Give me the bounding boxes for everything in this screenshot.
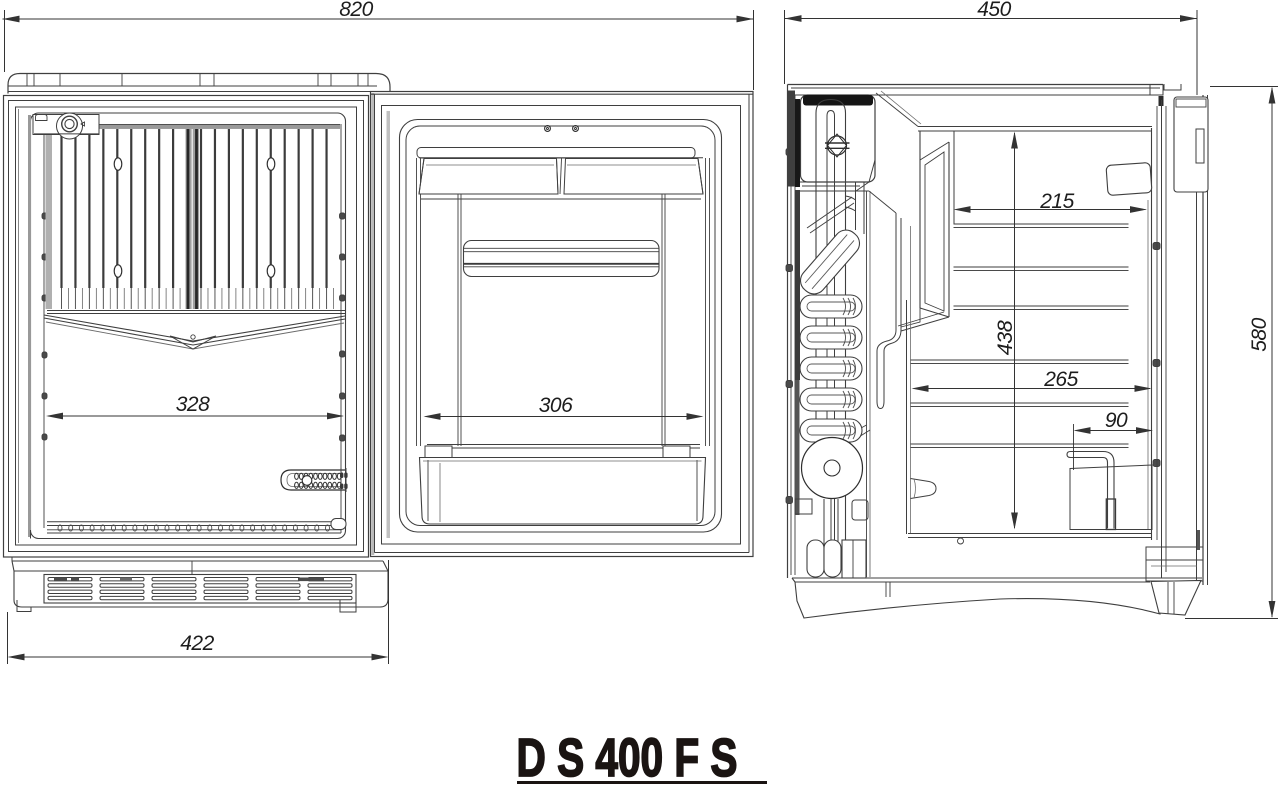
svg-text:328: 328 — [176, 393, 210, 416]
svg-text:438: 438 — [993, 320, 1017, 355]
svg-text:820: 820 — [339, 0, 373, 21]
svg-text:306: 306 — [539, 394, 573, 417]
svg-text:422: 422 — [180, 632, 214, 655]
svg-text:90: 90 — [1105, 409, 1128, 432]
svg-text:450: 450 — [977, 0, 1011, 21]
svg-text:265: 265 — [1043, 368, 1078, 391]
svg-text:D S 400 F S: D S 400 F S — [517, 728, 738, 786]
svg-text:215: 215 — [1039, 190, 1074, 213]
svg-text:580: 580 — [1248, 317, 1271, 351]
